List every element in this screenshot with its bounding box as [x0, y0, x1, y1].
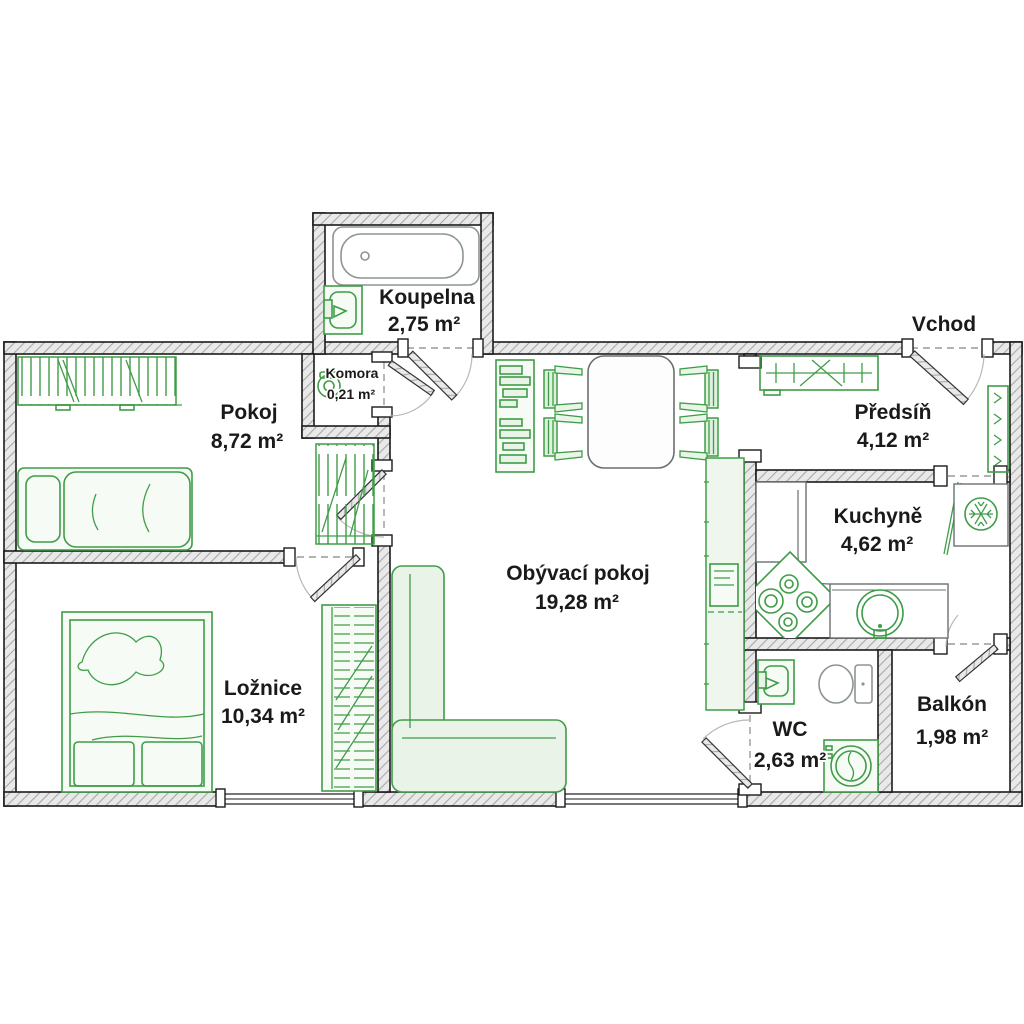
double-bed — [62, 612, 212, 792]
wall-bathroom-top — [313, 213, 493, 225]
wall-exterior-right — [1010, 342, 1022, 806]
wall-komora-bottom — [302, 426, 390, 438]
loznice-wardrobe — [322, 605, 376, 791]
living-shelf — [496, 360, 534, 472]
door-wc — [702, 702, 761, 795]
wall-exterior-top — [4, 342, 1022, 354]
wall-bathroom-right — [481, 213, 493, 354]
room-area-loznice: 10,34 m² — [221, 705, 305, 728]
opening-predsin-passage — [739, 356, 761, 462]
stove — [744, 552, 836, 644]
room-area-komora: 0,21 m² — [327, 386, 376, 402]
living-cabinet — [704, 458, 744, 710]
pokoj-rack — [316, 444, 374, 544]
single-bed — [18, 468, 192, 550]
dining-table — [588, 356, 674, 468]
room-label-pokoj: Pokoj — [220, 401, 277, 424]
pokoj-bookshelf — [18, 357, 182, 410]
room-area-koupelna: 2,75 m² — [388, 313, 460, 336]
window-loznice — [216, 789, 363, 808]
bathtub — [333, 227, 479, 285]
washing-machine — [824, 740, 878, 792]
room-label-wc: WC — [773, 718, 808, 741]
kitchen-sink — [830, 584, 948, 638]
room-label-kuchyne: Kuchyně — [834, 505, 923, 528]
door-komora — [372, 352, 434, 417]
room-area-predsin: 4,12 m² — [857, 429, 929, 452]
floor-plan-drawing: Koupelna 2,75 m² Komora 0,21 m² Pokoj 8,… — [0, 0, 1024, 1024]
room-area-kuchyne: 4,62 m² — [841, 533, 913, 556]
wall-pokoj-living — [378, 354, 390, 792]
wall-exterior-left — [4, 342, 16, 806]
wall-wc-balkon — [878, 650, 892, 792]
door-vchod — [902, 339, 993, 404]
wc-sink — [758, 660, 794, 704]
room-area-balkon: 1,98 m² — [916, 726, 988, 749]
door-koupelna — [398, 339, 483, 400]
toilet — [819, 665, 872, 703]
room-label-komora: Komora — [326, 365, 379, 381]
room-label-loznice: Ložnice — [224, 677, 302, 700]
door-loznice — [284, 548, 364, 601]
wall-exterior-bottom — [4, 792, 1022, 806]
hall-wardrobe — [760, 356, 878, 395]
room-area-obyvaci-pokoj: 19,28 m² — [535, 591, 619, 614]
room-label-balkon: Balkón — [917, 693, 987, 716]
room-label-predsin: Předsíň — [854, 401, 931, 424]
fridge — [954, 484, 1008, 546]
entrance-label: Vchod — [912, 313, 976, 336]
floor-plan-page: Koupelna 2,75 m² Komora 0,21 m² Pokoj 8,… — [0, 0, 1024, 1024]
shoe-rack — [988, 386, 1008, 472]
window-obyvaci-pokoj — [556, 789, 747, 808]
room-area-pokoj: 8,72 m² — [211, 430, 283, 453]
room-label-koupelna: Koupelna — [379, 286, 475, 309]
bathroom-sink — [324, 286, 362, 334]
room-label-obyvaci-pokoj: Obývací pokoj — [506, 562, 650, 585]
room-area-wc: 2,63 m² — [754, 749, 826, 772]
